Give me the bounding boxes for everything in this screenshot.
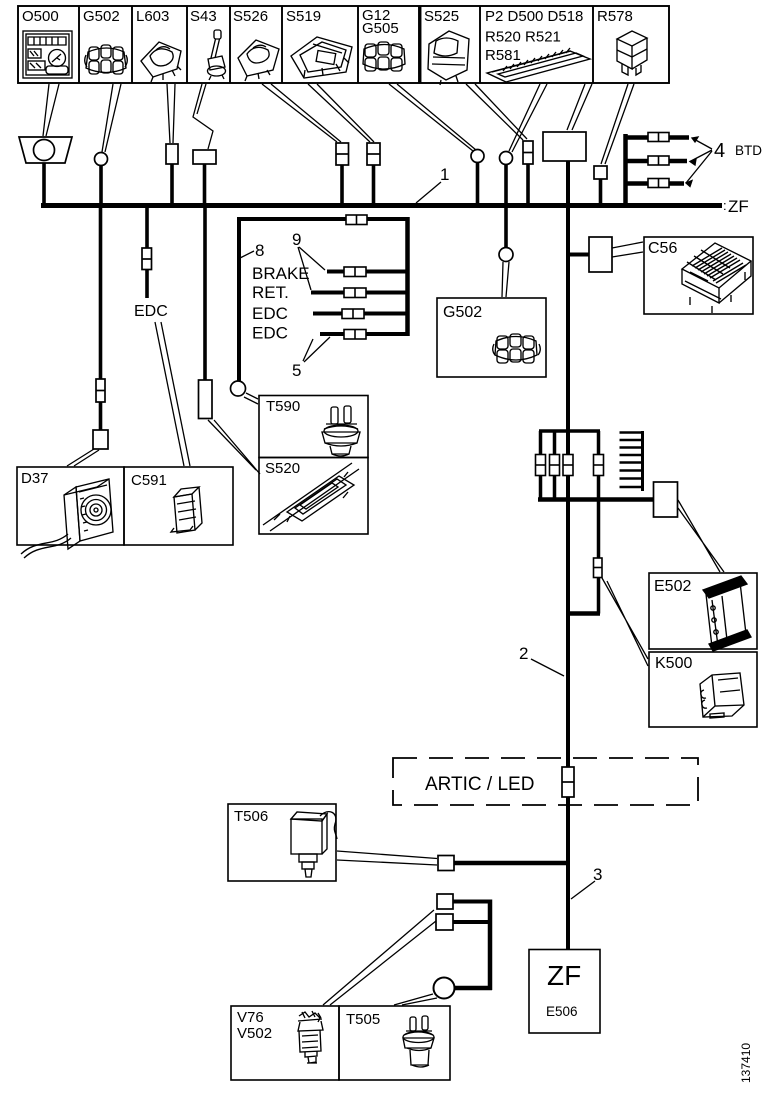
svg-text:2: 2	[519, 644, 528, 663]
svg-text:ARTIC / LED: ARTIC / LED	[425, 774, 534, 795]
svg-text:5: 5	[292, 361, 301, 380]
svg-text:9: 9	[292, 230, 301, 249]
svg-text:V502: V502	[237, 1025, 272, 1042]
svg-text:V76: V76	[237, 1009, 264, 1026]
svg-text:R578: R578	[597, 8, 633, 25]
svg-text:S519: S519	[286, 8, 321, 25]
svg-text:S525: S525	[424, 8, 459, 25]
svg-text:P2 D500 D518: P2 D500 D518	[485, 8, 583, 25]
svg-text:T590: T590	[266, 398, 300, 415]
svg-text:ZF: ZF	[728, 197, 749, 216]
svg-text:K500: K500	[655, 655, 692, 672]
svg-text:D37: D37	[21, 470, 49, 487]
svg-text:G502: G502	[83, 8, 120, 25]
svg-text:S526: S526	[233, 8, 268, 25]
svg-text::: :	[723, 198, 727, 213]
svg-text:RET.: RET.	[252, 283, 289, 302]
svg-text:R581: R581	[485, 47, 521, 64]
svg-text:L603: L603	[136, 8, 169, 25]
svg-text:E502: E502	[654, 578, 691, 595]
svg-text:C56: C56	[648, 240, 677, 257]
svg-text:1: 1	[440, 165, 449, 184]
svg-text:ZF: ZF	[547, 960, 581, 991]
svg-text:8: 8	[255, 241, 264, 260]
svg-text:EDC: EDC	[134, 303, 168, 320]
svg-text:T505: T505	[346, 1011, 380, 1028]
svg-text:E506: E506	[546, 1004, 578, 1019]
svg-text:EDC: EDC	[252, 304, 288, 323]
svg-text:G505: G505	[362, 20, 399, 37]
svg-text:BTD: BTD	[735, 143, 762, 158]
svg-text:S520: S520	[265, 460, 300, 477]
svg-text:EDC: EDC	[252, 324, 288, 343]
svg-text:T506: T506	[234, 808, 268, 825]
svg-text:137410: 137410	[739, 1043, 753, 1083]
svg-text:4: 4	[714, 140, 725, 162]
svg-text:BRAKE: BRAKE	[252, 264, 310, 283]
svg-text:S43: S43	[190, 8, 217, 25]
svg-text:C591: C591	[131, 472, 167, 489]
svg-text:R520 R521: R520 R521	[485, 29, 561, 46]
svg-text:O500: O500	[22, 8, 59, 25]
svg-text:G502: G502	[443, 304, 482, 321]
